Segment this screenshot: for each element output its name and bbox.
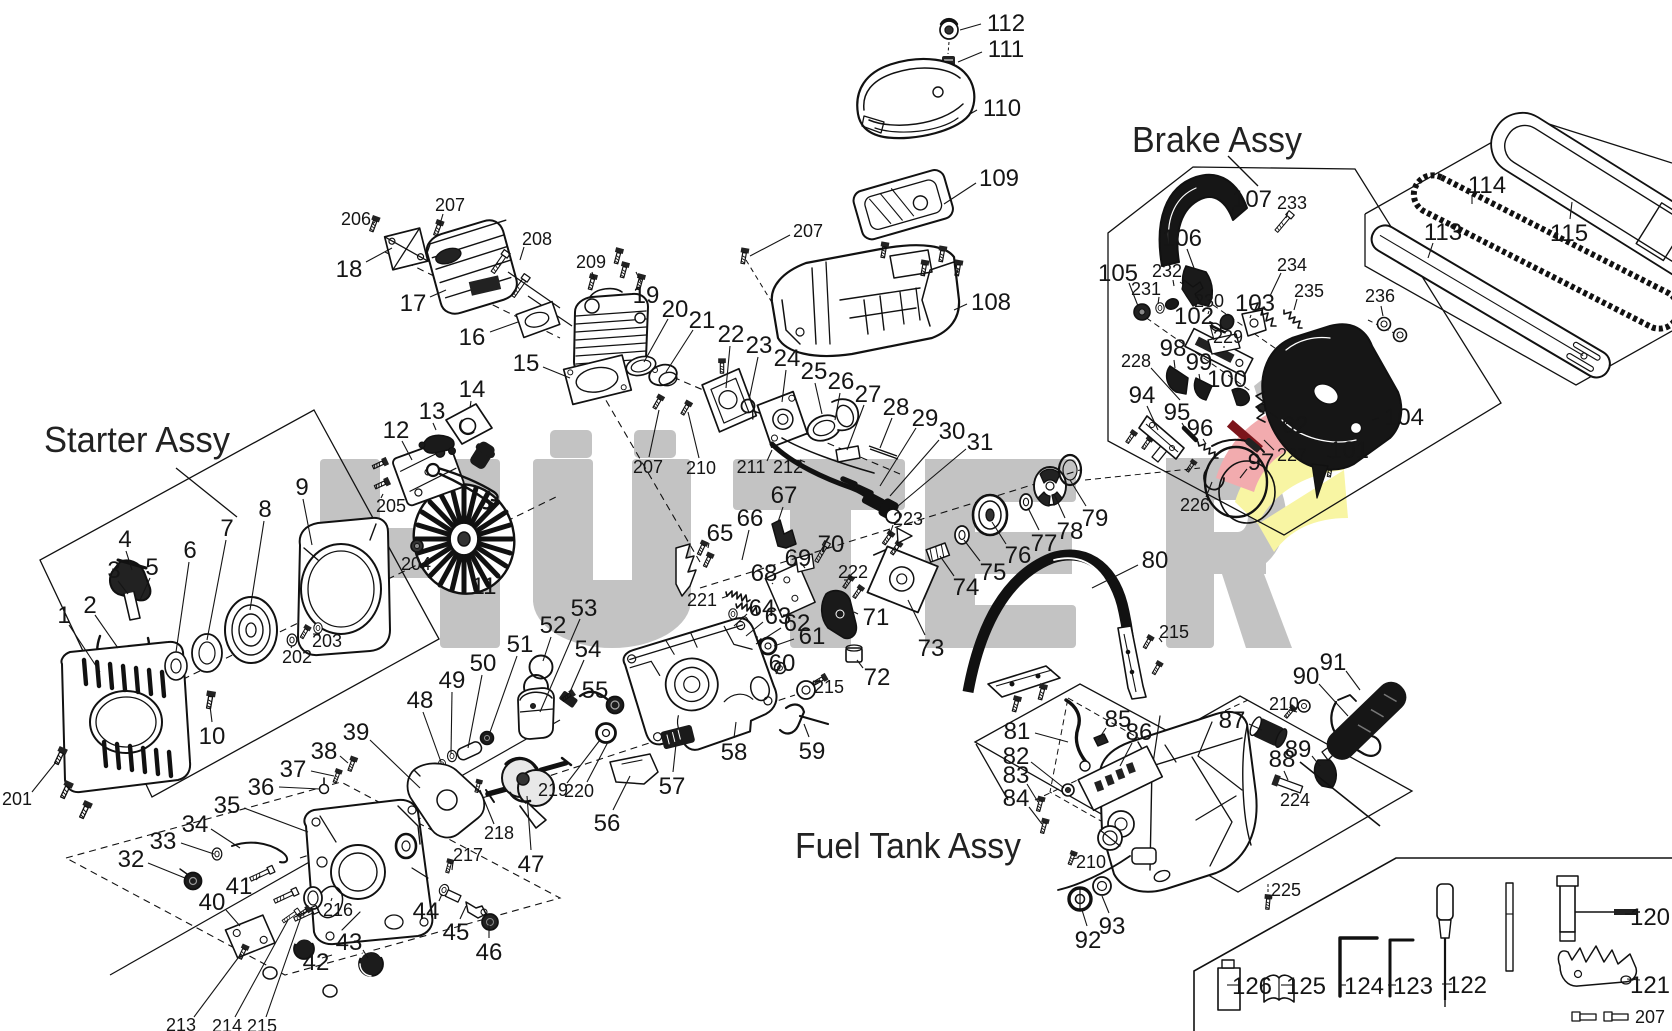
svg-text:19: 19: [633, 282, 660, 309]
svg-text:74: 74: [953, 574, 980, 601]
svg-text:100: 100: [1207, 366, 1247, 393]
svg-text:103: 103: [1235, 290, 1275, 317]
svg-text:211: 211: [737, 457, 766, 477]
svg-text:214: 214: [212, 1016, 242, 1031]
svg-text:32: 32: [118, 846, 145, 873]
svg-text:220: 220: [564, 781, 594, 801]
svg-text:50: 50: [470, 650, 497, 677]
svg-text:56: 56: [594, 810, 621, 837]
svg-text:120: 120: [1630, 904, 1670, 931]
svg-text:227: 227: [1277, 445, 1307, 465]
svg-text:18: 18: [336, 256, 363, 283]
svg-text:Starter Assy: Starter Assy: [44, 419, 230, 460]
svg-text:230: 230: [1194, 291, 1224, 311]
svg-text:210: 210: [1269, 694, 1299, 714]
svg-text:8: 8: [258, 496, 271, 523]
svg-text:204: 204: [401, 554, 431, 574]
svg-text:90: 90: [1293, 663, 1320, 690]
svg-text:208: 208: [522, 229, 552, 249]
svg-text:4: 4: [118, 526, 131, 553]
svg-text:108: 108: [971, 289, 1011, 316]
svg-text:215: 215: [247, 1016, 277, 1031]
svg-text:87: 87: [1219, 707, 1246, 734]
svg-text:92: 92: [1075, 927, 1102, 954]
svg-text:213: 213: [166, 1015, 196, 1031]
svg-text:77: 77: [1031, 530, 1058, 557]
svg-text:30: 30: [939, 418, 966, 445]
svg-text:233: 233: [1277, 193, 1307, 213]
svg-text:64: 64: [749, 595, 776, 622]
svg-text:124: 124: [1344, 973, 1384, 1000]
svg-text:Fuel Tank Assy: Fuel Tank Assy: [795, 825, 1021, 866]
svg-text:225: 225: [1271, 880, 1301, 900]
svg-text:26: 26: [828, 368, 855, 395]
svg-text:229: 229: [1213, 327, 1243, 347]
svg-text:207: 207: [1635, 1007, 1665, 1027]
svg-text:113: 113: [1424, 219, 1462, 246]
svg-text:210: 210: [686, 458, 716, 478]
svg-text:24: 24: [774, 345, 801, 372]
svg-text:42: 42: [303, 949, 330, 976]
svg-text:12: 12: [383, 417, 410, 444]
svg-text:5: 5: [145, 554, 158, 581]
svg-text:222: 222: [838, 562, 868, 582]
svg-text:79: 79: [1082, 505, 1109, 532]
svg-text:29: 29: [912, 405, 939, 432]
svg-text:97: 97: [1248, 449, 1275, 476]
svg-text:31: 31: [967, 429, 994, 456]
svg-text:75: 75: [980, 559, 1007, 586]
svg-text:215: 215: [814, 677, 844, 697]
svg-text:3: 3: [107, 557, 120, 584]
svg-text:48: 48: [407, 687, 434, 714]
svg-text:104: 104: [1384, 404, 1424, 431]
svg-text:27: 27: [855, 381, 882, 408]
svg-text:53: 53: [571, 595, 598, 622]
svg-text:17: 17: [400, 290, 427, 317]
svg-text:93: 93: [1099, 913, 1126, 940]
svg-text:207: 207: [793, 221, 823, 241]
svg-text:80: 80: [1142, 547, 1169, 574]
svg-text:54: 54: [575, 636, 602, 663]
svg-text:67: 67: [771, 482, 798, 509]
svg-text:68: 68: [751, 560, 778, 587]
svg-text:109: 109: [979, 165, 1019, 192]
svg-text:1: 1: [57, 602, 70, 629]
svg-text:206: 206: [341, 209, 371, 229]
svg-text:226: 226: [1180, 495, 1210, 515]
svg-text:111: 111: [988, 36, 1024, 63]
svg-text:96: 96: [1187, 415, 1214, 442]
svg-text:Brake Assy: Brake Assy: [1132, 119, 1302, 160]
svg-text:234: 234: [1277, 255, 1307, 275]
svg-text:209: 209: [576, 252, 606, 272]
svg-text:7: 7: [220, 515, 233, 542]
svg-text:43: 43: [336, 929, 363, 956]
svg-text:107: 107: [1232, 186, 1272, 213]
svg-text:6: 6: [183, 537, 196, 564]
svg-text:41: 41: [226, 873, 253, 900]
svg-text:81: 81: [1004, 718, 1031, 745]
svg-text:14: 14: [459, 376, 486, 403]
svg-text:16: 16: [459, 324, 486, 351]
svg-text:221: 221: [687, 590, 717, 610]
svg-text:218: 218: [484, 823, 514, 843]
svg-text:114: 114: [1468, 172, 1506, 199]
svg-text:33: 33: [150, 828, 177, 855]
svg-text:207: 207: [633, 457, 663, 477]
svg-text:59: 59: [799, 738, 826, 765]
svg-text:78: 78: [1057, 518, 1084, 545]
svg-text:122: 122: [1447, 972, 1487, 999]
svg-text:35: 35: [214, 792, 241, 819]
svg-text:98: 98: [1160, 335, 1187, 362]
svg-text:62: 62: [1282, 412, 1309, 439]
svg-text:9: 9: [295, 474, 308, 501]
svg-text:70: 70: [818, 531, 845, 558]
svg-text:121: 121: [1630, 972, 1670, 999]
svg-text:101: 101: [1329, 437, 1369, 464]
svg-text:20: 20: [662, 296, 689, 323]
svg-text:66: 66: [737, 505, 764, 532]
svg-text:28: 28: [883, 394, 910, 421]
svg-text:232: 232: [1152, 261, 1182, 281]
svg-text:46: 46: [476, 939, 503, 966]
svg-text:210: 210: [1076, 852, 1106, 872]
svg-text:38: 38: [311, 738, 338, 765]
svg-text:215: 215: [1159, 622, 1189, 642]
svg-text:2: 2: [83, 592, 96, 619]
svg-text:72: 72: [864, 664, 891, 691]
svg-text:23: 23: [746, 332, 773, 359]
svg-text:125: 125: [1286, 973, 1326, 1000]
svg-text:60: 60: [769, 650, 796, 677]
svg-text:203: 203: [312, 631, 342, 651]
svg-text:91: 91: [1320, 649, 1347, 676]
svg-text:57: 57: [659, 773, 686, 800]
svg-text:11: 11: [472, 573, 497, 600]
svg-text:223: 223: [893, 509, 923, 529]
svg-text:217: 217: [453, 845, 483, 865]
svg-text:25: 25: [801, 358, 828, 385]
svg-text:55: 55: [582, 677, 609, 704]
svg-text:216: 216: [323, 900, 353, 920]
svg-text:94: 94: [1129, 382, 1156, 409]
svg-text:84: 84: [1003, 785, 1030, 812]
svg-text:37: 37: [280, 756, 307, 783]
svg-text:47: 47: [518, 851, 545, 878]
svg-text:115: 115: [1550, 220, 1588, 247]
svg-text:52: 52: [540, 612, 567, 639]
svg-text:123: 123: [1393, 973, 1433, 1000]
svg-text:228: 228: [1121, 351, 1151, 371]
svg-text:44: 44: [413, 898, 440, 925]
svg-text:34: 34: [182, 811, 209, 838]
svg-text:235: 235: [1294, 281, 1324, 301]
svg-text:40: 40: [199, 889, 226, 916]
svg-text:231: 231: [1131, 279, 1161, 299]
svg-text:36: 36: [248, 774, 275, 801]
svg-text:21: 21: [689, 307, 716, 334]
svg-text:89: 89: [1285, 736, 1312, 763]
svg-text:71: 71: [863, 604, 890, 631]
svg-text:224: 224: [1280, 790, 1310, 810]
svg-text:73: 73: [918, 635, 945, 662]
svg-text:236: 236: [1365, 286, 1395, 306]
svg-text:15: 15: [513, 350, 540, 377]
svg-text:126: 126: [1232, 973, 1272, 1000]
svg-text:69: 69: [785, 545, 812, 572]
svg-text:207: 207: [435, 195, 465, 215]
svg-text:39: 39: [343, 719, 370, 746]
svg-text:58: 58: [721, 739, 748, 766]
svg-text:86: 86: [1126, 719, 1153, 746]
svg-text:76: 76: [1005, 542, 1032, 569]
svg-text:205: 205: [376, 496, 406, 516]
svg-text:51: 51: [507, 631, 534, 658]
svg-text:110: 110: [983, 95, 1021, 122]
svg-text:112: 112: [987, 10, 1025, 37]
svg-text:212: 212: [773, 457, 803, 477]
svg-text:22: 22: [718, 321, 745, 348]
svg-text:49: 49: [439, 667, 466, 694]
svg-text:13: 13: [419, 398, 446, 425]
svg-text:65: 65: [707, 520, 734, 547]
svg-text:45: 45: [443, 919, 470, 946]
svg-text:106: 106: [1162, 225, 1202, 252]
svg-text:202: 202: [282, 647, 312, 667]
svg-text:10: 10: [199, 723, 226, 750]
svg-text:201: 201: [2, 789, 32, 809]
